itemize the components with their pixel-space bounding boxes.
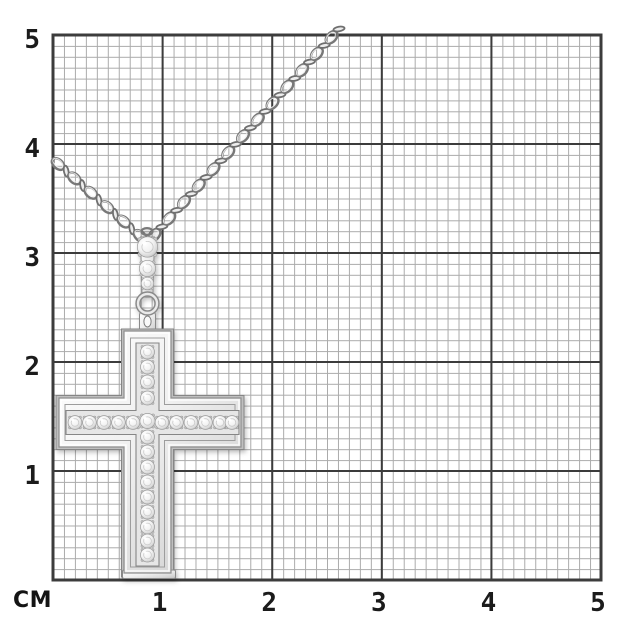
diamond-stone <box>155 416 169 430</box>
diamond-glint <box>115 419 118 422</box>
diamond-glint <box>144 478 147 481</box>
diamond-glint <box>144 280 147 283</box>
diamond-glint <box>144 448 147 451</box>
diamond-stone <box>141 430 155 444</box>
y-tick-label: 3 <box>24 243 40 273</box>
diamond-glint <box>217 419 220 422</box>
diamond-glint <box>202 419 205 422</box>
diamond-stone <box>141 505 155 519</box>
diamond-stone <box>141 391 155 405</box>
diamond-stone <box>139 260 155 276</box>
diamond-stone <box>141 490 155 504</box>
diamond-glint <box>86 419 89 422</box>
diamond-stone <box>97 416 111 430</box>
diamond-glint <box>130 419 133 422</box>
diamond-glint <box>144 493 147 496</box>
diamond-glint <box>144 394 147 397</box>
diamond-stone <box>112 416 126 430</box>
diamond-stone <box>184 416 198 430</box>
diamond-glint <box>144 537 147 540</box>
diamond-stone <box>126 416 140 430</box>
diamond-glint <box>142 241 146 245</box>
x-tick-label: 2 <box>261 588 277 618</box>
product-photo-canvas: 1234554321 СМ <box>0 0 640 640</box>
diamond-glint <box>144 378 147 381</box>
diamond-glint <box>101 419 104 422</box>
diamond-glint <box>173 419 176 422</box>
diamond-stone <box>225 416 239 430</box>
y-tick-label: 2 <box>24 352 40 382</box>
diamond-stone <box>141 375 155 389</box>
diamond-stone <box>140 413 155 428</box>
diamond-glint <box>144 417 147 420</box>
y-tick-label: 4 <box>24 134 40 164</box>
diamond-stone <box>141 534 155 548</box>
x-tick-label: 1 <box>152 588 168 618</box>
diamond-stone <box>137 237 157 257</box>
diamond-glint <box>144 433 147 436</box>
diamond-glint <box>144 523 147 526</box>
diamond-glint <box>144 508 147 511</box>
y-tick-label: 5 <box>24 25 40 55</box>
diamond-glint <box>144 363 147 366</box>
diamond-glint <box>188 419 191 422</box>
measurement-grid: 1234554321 СМ <box>13 25 606 618</box>
diamond-stone <box>141 345 155 359</box>
diamond-glint <box>143 264 146 267</box>
diamond-stone <box>199 416 213 430</box>
diamond-glint <box>144 551 147 554</box>
x-tick-label: 3 <box>371 588 387 618</box>
diamond-glint <box>72 419 75 422</box>
diamond-glint <box>144 348 147 351</box>
x-tick-label: 5 <box>590 588 606 618</box>
diamond-stone <box>141 475 155 489</box>
y-tick-label: 1 <box>24 461 40 491</box>
diamond-stone <box>83 416 97 430</box>
diamond-stone <box>141 277 154 290</box>
chain-link <box>333 26 345 33</box>
diamond-glint <box>229 419 232 422</box>
diamond-stone <box>141 548 155 562</box>
diamond-glint <box>159 419 162 422</box>
ruler-unit-label: СМ <box>13 588 52 613</box>
diamond-stone <box>68 416 82 430</box>
jewelry-size-photo: 1234554321 СМ <box>0 0 640 640</box>
diamond-stone <box>141 445 155 459</box>
diamond-stone <box>141 360 155 374</box>
diamond-stone <box>141 460 155 474</box>
connector-hole <box>144 316 151 327</box>
diamond-stone <box>141 520 155 534</box>
x-tick-label: 4 <box>481 588 497 618</box>
diamond-glint <box>144 463 147 466</box>
diamond-stone <box>170 416 184 430</box>
